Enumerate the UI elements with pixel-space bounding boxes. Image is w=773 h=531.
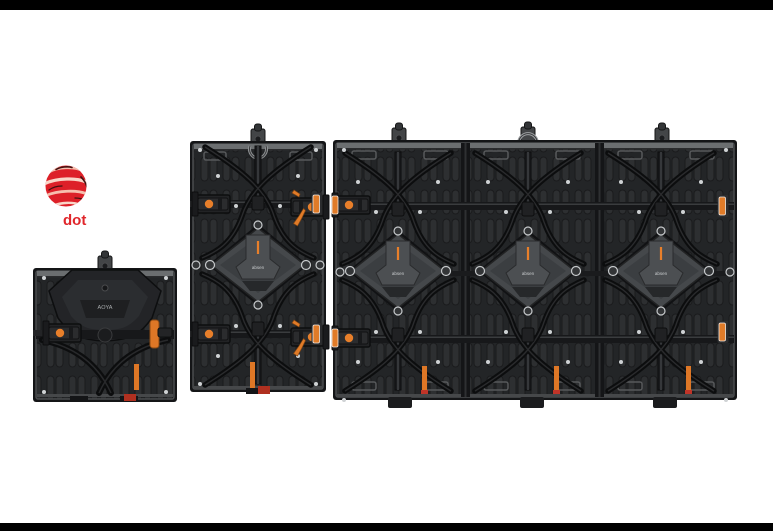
- svg-text:AOYA: AOYA: [98, 305, 113, 311]
- svg-text:dot: dot: [63, 212, 86, 229]
